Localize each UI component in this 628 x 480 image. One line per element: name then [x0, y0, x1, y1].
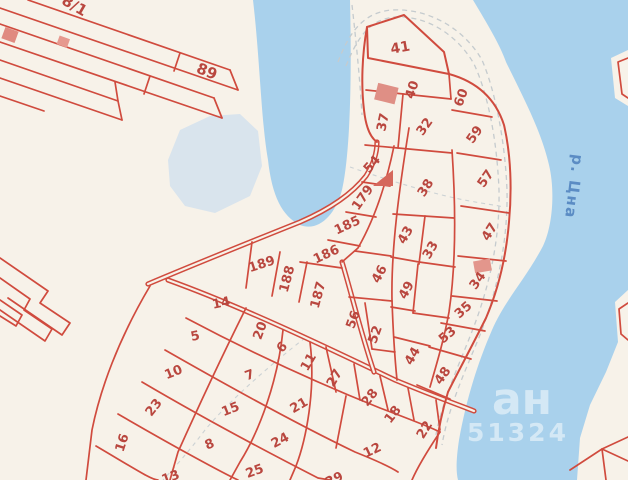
- parcel-label: 187: [308, 280, 330, 310]
- parcel-label: 41: [389, 38, 411, 57]
- parcel-label: 44: [402, 345, 424, 368]
- channel-shape: [253, 0, 351, 227]
- parcel-label: 29: [323, 469, 346, 480]
- grid-parcels: [86, 286, 440, 480]
- parcel-label: 188: [277, 264, 299, 294]
- watermark-number: 51324: [467, 418, 569, 447]
- parcel-label: 21: [288, 395, 311, 417]
- parcel-label: 8/1: [59, 0, 91, 20]
- building-icon: [57, 36, 70, 48]
- parcel-label: 89: [194, 59, 220, 84]
- parcel-label: 18: [382, 403, 405, 426]
- parcel-label: 38: [415, 176, 437, 199]
- parcel-label: 24: [269, 430, 292, 452]
- parcel-label: 32: [414, 115, 437, 138]
- parcel-label: 23: [143, 396, 166, 419]
- parcel-label: 59: [464, 123, 487, 146]
- parcel-label: 186: [311, 242, 342, 267]
- parcel-label: 25: [244, 462, 266, 480]
- cadastral-map[interactable]: р. Цна 8/1894140373260595747343553444838…: [0, 0, 628, 480]
- parcel-label: 14: [211, 294, 232, 312]
- parcel-label: 6: [274, 339, 291, 356]
- map-canvas[interactable]: р. Цна 8/1894140373260595747343553444838…: [0, 0, 628, 480]
- parcel-label: 43: [395, 224, 417, 247]
- parcel-label: 28: [359, 386, 382, 409]
- parcel-label: 53: [436, 324, 460, 347]
- building-icon: [374, 83, 398, 105]
- parcel-label: 46: [369, 263, 391, 286]
- parcel-label: 5: [189, 328, 201, 345]
- parcel-label: 10: [162, 362, 184, 383]
- parcel-label: 37: [374, 112, 392, 133]
- parcel-label: 15: [219, 399, 241, 420]
- parcel-label: 189: [247, 253, 277, 276]
- stepped-parcels: [0, 258, 70, 341]
- pond-shape: [168, 114, 262, 213]
- parcel-label: 54: [361, 153, 384, 176]
- parcel-label: 35: [452, 299, 475, 322]
- building-icon: [373, 170, 393, 186]
- parcel-label: 57: [475, 167, 498, 190]
- parcel-label: 16: [113, 432, 133, 454]
- parcel-label: 40: [403, 79, 423, 101]
- parcel-label: 12: [361, 440, 384, 461]
- channel-trail: [352, 5, 362, 115]
- parcel-label: 13: [160, 468, 182, 480]
- parcel-label: 185: [332, 213, 363, 238]
- parcel-label: 33: [420, 239, 442, 262]
- parcel-label: 60: [452, 87, 472, 109]
- parcel-label: 11: [298, 351, 320, 374]
- parcel-label: 8: [203, 436, 217, 453]
- parcel-label: 7: [243, 367, 257, 384]
